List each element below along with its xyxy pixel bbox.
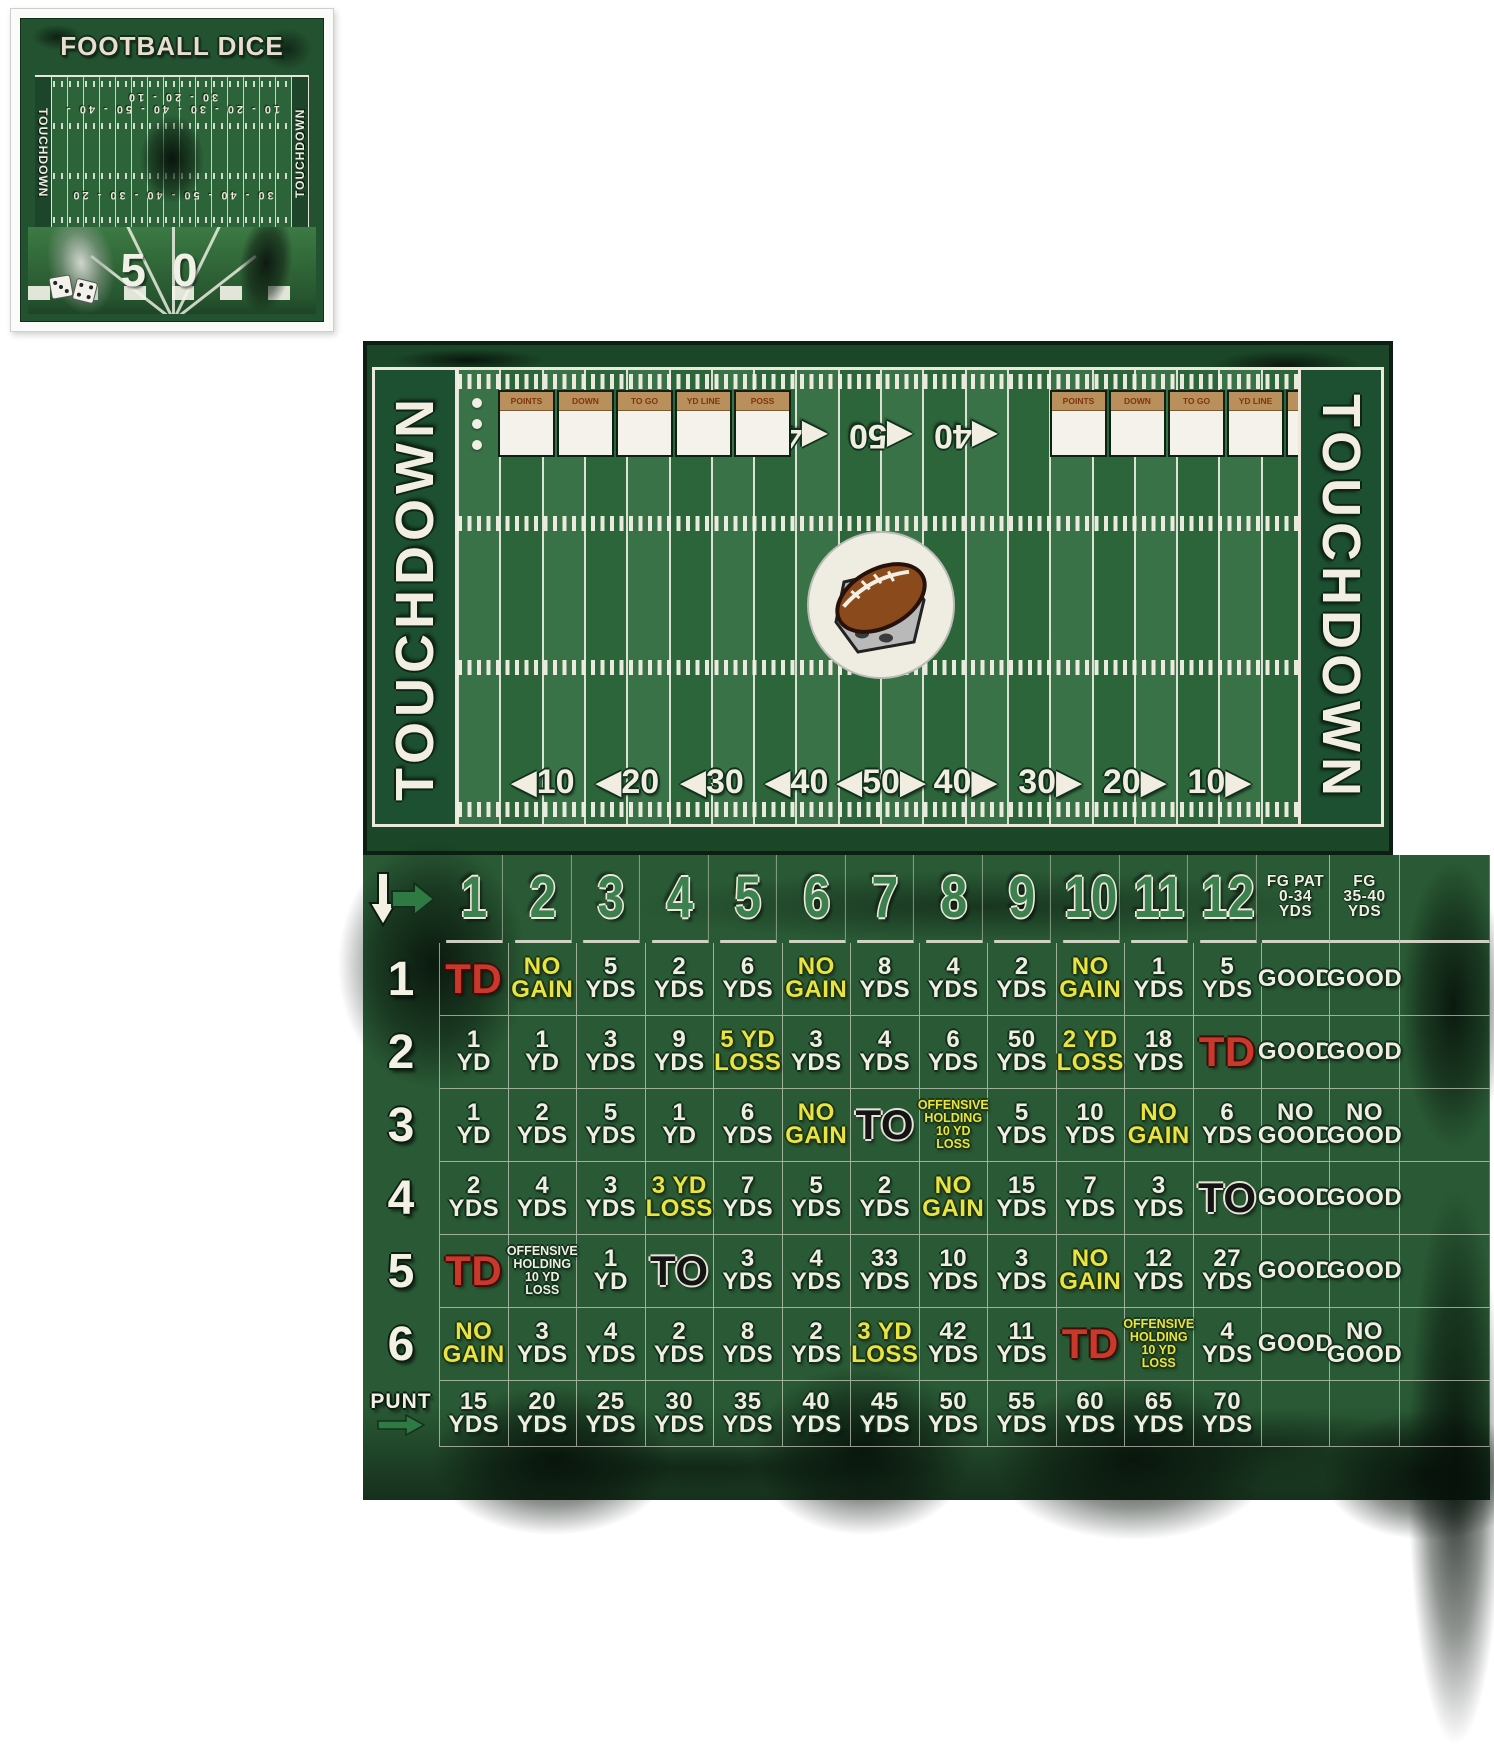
scoreboard-box: TO GO [616, 390, 673, 457]
punt-label: PUNT [370, 1392, 431, 1412]
scoreboard-box-header: YD LINE [677, 392, 730, 411]
die-row-label-1: 1 [363, 943, 440, 1016]
right-arrow-icon [392, 883, 434, 915]
cover-endzone-left-label: TOUCHDOWN [36, 108, 50, 197]
result-cell: TD [1194, 1016, 1263, 1089]
scoreboard-box-header: TO GO [618, 392, 671, 411]
result-cell: 3 YDS [577, 1162, 646, 1235]
result-cell: 1 YD [646, 1089, 715, 1162]
row-filler [1400, 1235, 1490, 1308]
scoreboard-box-field [1229, 411, 1282, 455]
game-board: TOUCHDOWN ◀10◀20◀30◀40◀50▶40▶30▶20▶10 [363, 341, 1490, 1500]
dice-column-header-9: 9 [994, 855, 1050, 943]
result-cell [1262, 1381, 1330, 1447]
result-cell: 3 YD LOSS [646, 1162, 715, 1235]
scoreboard-box-header: POINTS [500, 392, 553, 411]
die-row-label-2: 2 [363, 1016, 440, 1089]
result-cell: 5 YDS [783, 1162, 852, 1235]
result-cell: 1 YD [440, 1016, 509, 1089]
result-cell: 4 YDS [509, 1162, 578, 1235]
yard-number: 30▶ [1018, 762, 1082, 802]
result-cell: 6 YDS [714, 1089, 783, 1162]
die-row-label-4: 4 [363, 1162, 440, 1235]
scoreboard-box: POINTS [498, 390, 555, 457]
result-cell: 20 YDS [509, 1381, 578, 1447]
dice-column-header-4: 4 [652, 855, 708, 943]
result-cell: GOOD [1262, 943, 1330, 1016]
result-cell: 3 YDS [577, 1016, 646, 1089]
result-cell: NO GOOD [1330, 1089, 1400, 1162]
hash-marks [458, 374, 1298, 389]
result-cell: 2 YDS [646, 943, 715, 1016]
dice-column-header-6: 6 [789, 855, 845, 943]
box-cover-thumbnail: FOOTBALL DICE TOUCHDOWN TOUCHDOWN 10 - 2… [10, 8, 334, 332]
result-cell: 3 YDS [783, 1016, 852, 1089]
scoreboard-box-field [1052, 411, 1105, 455]
score-dot [472, 398, 482, 408]
scoreboard-box-header: POINTS [1052, 392, 1105, 411]
yard-number: 40▶ [934, 762, 998, 802]
cover-dice-icon [48, 274, 73, 299]
result-cell: GOOD [1262, 1235, 1330, 1308]
yard-number: ◀30 [680, 762, 744, 802]
result-cell: NO GAIN [1057, 1235, 1126, 1308]
result-cell: 70 YDS [1194, 1381, 1263, 1447]
result-cell: 2 YDS [509, 1089, 578, 1162]
yard-line [1007, 370, 1009, 824]
arrow-icons [366, 859, 438, 939]
result-cell: 5 YD LOSS [714, 1016, 783, 1089]
yard-number-inverted: ◀50 [849, 416, 913, 456]
result-cell: 3 YDS [1125, 1162, 1194, 1235]
dice-column-header-3: 3 [583, 855, 639, 943]
result-cell: 8 YDS [851, 943, 920, 1016]
cover-hash-marks [53, 217, 291, 223]
result-cell: 55 YDS [988, 1381, 1057, 1447]
result-cell: OFFENSIVE HOLDING 10 YD LOSS [920, 1089, 989, 1162]
right-endzone: TOUCHDOWN [1298, 370, 1381, 824]
fg-column-header-1: FG PAT 0-34 YDS [1262, 855, 1330, 943]
row-filler [1400, 1089, 1490, 1162]
scoreboard-box: TO GO [1168, 390, 1225, 457]
scoreboard-box-field [1111, 411, 1164, 455]
header-filler [1400, 855, 1490, 943]
result-cell: NO GAIN [509, 943, 578, 1016]
result-cell: 6 YDS [920, 1016, 989, 1089]
result-cell: 12 YDS [1125, 1235, 1194, 1308]
result-cell: 15 YDS [440, 1381, 509, 1447]
scoreboard-box-header: POSS [736, 392, 789, 411]
dice-column-header-2: 2 [515, 855, 571, 943]
right-endzone-label: TOUCHDOWN [1310, 394, 1372, 801]
dice-column-header-11: 11 [1131, 855, 1187, 943]
row-filler [1400, 1308, 1490, 1381]
result-cell: 2 YDS [988, 943, 1057, 1016]
cover-fifty-yard-text: 50 [120, 243, 223, 297]
result-cell: GOOD [1330, 1162, 1400, 1235]
result-cell: NO GOOD [1330, 1308, 1400, 1381]
score-dots-left [472, 398, 482, 450]
result-cell: 3 YD LOSS [851, 1308, 920, 1381]
cover-perspective-field: 50 [28, 227, 316, 314]
yard-number: ◀50▶ [836, 762, 926, 802]
scoreboard-box-field [618, 411, 671, 455]
result-cell: 5 YDS [577, 1089, 646, 1162]
result-cell: TO [646, 1235, 715, 1308]
scoreboard-left: POINTSDOWNTO GOYD LINEPOSS [498, 390, 791, 457]
yard-number: ◀10 [511, 762, 575, 802]
result-cell: TO [851, 1089, 920, 1162]
result-cell: 30 YDS [646, 1381, 715, 1447]
result-cell: 9 YDS [646, 1016, 715, 1089]
result-cell: NO GOOD [1262, 1089, 1330, 1162]
result-cell: 4 YDS [1194, 1308, 1263, 1381]
result-cell: 40 YDS [783, 1381, 852, 1447]
row-filler [1400, 1162, 1490, 1235]
result-cell: 35 YDS [714, 1381, 783, 1447]
result-cell: 7 YDS [714, 1162, 783, 1235]
result-cell: GOOD [1330, 943, 1400, 1016]
result-cell: 4 YDS [851, 1016, 920, 1089]
score-dot [472, 440, 482, 450]
cover-title: FOOTBALL DICE [21, 31, 323, 62]
result-cell: GOOD [1330, 1016, 1400, 1089]
result-cell: 5 YDS [577, 943, 646, 1016]
cover-player-silhouette [140, 115, 204, 203]
result-cell: 8 YDS [714, 1308, 783, 1381]
cover-endzone-right: TOUCHDOWN [292, 77, 309, 229]
cover-hash-marks [53, 81, 291, 87]
result-cell: 3 YDS [988, 1235, 1057, 1308]
hash-marks [458, 802, 1298, 817]
cover-endzone-right-label: TOUCHDOWN [293, 108, 307, 197]
scoreboard-box-header: DOWN [559, 392, 612, 411]
result-cell: NO GAIN [1125, 1089, 1194, 1162]
result-cell: 60 YDS [1057, 1381, 1126, 1447]
result-cell: 11 YDS [988, 1308, 1057, 1381]
result-cell: 1 YDS [1125, 943, 1194, 1016]
dice-column-header-10: 10 [1063, 855, 1119, 943]
result-cell: 27 YDS [1194, 1235, 1263, 1308]
cover-endzone-left: TOUCHDOWN [35, 77, 52, 229]
result-cell: 10 YDS [1057, 1089, 1126, 1162]
result-cell: TO [1194, 1162, 1263, 1235]
result-cell: 2 YDS [646, 1308, 715, 1381]
result-cell: 25 YDS [577, 1381, 646, 1447]
scoreboard-box: YD LINE [1227, 390, 1284, 457]
scoreboard-box: YD LINE [675, 390, 732, 457]
yard-number: 10▶ [1187, 762, 1251, 802]
result-cell: NO GAIN [783, 943, 852, 1016]
result-cell: 5 YDS [988, 1089, 1057, 1162]
result-cell: OFFENSIVE HOLDING 10 YD LOSS [1125, 1308, 1194, 1381]
die-row-label-6: 6 [363, 1308, 440, 1381]
die-row-label-3: 3 [363, 1089, 440, 1162]
result-cell: 42 YDS [920, 1308, 989, 1381]
yard-number-inverted: ◀40 [934, 416, 998, 456]
result-cell: 5 YDS [1194, 943, 1263, 1016]
yard-number: 20▶ [1103, 762, 1167, 802]
die-row-label-5: 5 [363, 1235, 440, 1308]
result-cell: NO GAIN [920, 1162, 989, 1235]
result-cell: 4 YDS [577, 1308, 646, 1381]
result-cell: 18 YDS [1125, 1016, 1194, 1089]
row-filler [1400, 1016, 1490, 1089]
result-cell: 7 YDS [1057, 1162, 1126, 1235]
result-cell: 2 YDS [851, 1162, 920, 1235]
left-endzone-label: TOUCHDOWN [384, 394, 446, 801]
cover-board: FOOTBALL DICE TOUCHDOWN TOUCHDOWN 10 - 2… [20, 18, 324, 322]
result-cell: GOOD [1330, 1235, 1400, 1308]
result-cell: 2 YD LOSS [1057, 1016, 1126, 1089]
result-cell: OFFENSIVE HOLDING 10 YD LOSS [509, 1235, 578, 1308]
scoreboard-box-header: DOWN [1111, 392, 1164, 411]
result-cell: 65 YDS [1125, 1381, 1194, 1447]
result-cell: NO GAIN [440, 1308, 509, 1381]
scoreboard-box: DOWN [557, 390, 614, 457]
result-cell: TD [440, 943, 509, 1016]
row-filler [1400, 1381, 1490, 1447]
result-cell: 33 YDS [851, 1235, 920, 1308]
result-cell: 1 YD [509, 1016, 578, 1089]
scoreboard-box: DOWN [1109, 390, 1166, 457]
dice-column-header-5: 5 [720, 855, 776, 943]
scoreboard-box-field [559, 411, 612, 455]
yard-number: ◀40 [764, 762, 828, 802]
row-filler [1400, 943, 1490, 1016]
scoreboard-box-field [736, 411, 789, 455]
result-cell: 15 YDS [988, 1162, 1057, 1235]
result-cell: 10 YDS [920, 1235, 989, 1308]
yard-number: ◀20 [595, 762, 659, 802]
product-image-page: { "thumbnail": { "title": "FOOTBALL DICE… [0, 0, 1494, 1500]
result-cell: NO GAIN [783, 1089, 852, 1162]
result-cell: 4 YDS [920, 943, 989, 1016]
result-cell: 6 YDS [1194, 1089, 1263, 1162]
score-dot [472, 419, 482, 429]
field-inner: TOUCHDOWN ◀10◀20◀30◀40◀50▶40▶30▶20▶10 [372, 367, 1384, 827]
scoreboard-box-header: YD LINE [1229, 392, 1282, 411]
dice-column-header-12: 12 [1200, 855, 1256, 943]
scoreboard-box: POSS [734, 390, 791, 457]
result-cell: NO GAIN [1057, 943, 1126, 1016]
scoreboard-box: POINTS [1050, 390, 1107, 457]
scoreboard-box-field [677, 411, 730, 455]
result-cell: 4 YDS [783, 1235, 852, 1308]
yard-line [457, 370, 459, 824]
result-cell: 2 YDS [783, 1308, 852, 1381]
football-field: TOUCHDOWN ◀10◀20◀30◀40◀50▶40▶30▶20▶10 [363, 341, 1393, 855]
punt-arrow-icon [376, 1414, 426, 1436]
cover-yard-numbers-top: 10 - 20 - 30 - 40 - 50 - 40 - 30 - 20 - … [55, 91, 289, 115]
left-endzone: TOUCHDOWN [375, 370, 458, 824]
dice-column-header-1: 1 [446, 855, 502, 943]
result-cell: 6 YDS [714, 943, 783, 1016]
dice-column-header-8: 8 [926, 855, 982, 943]
result-cell [1330, 1381, 1400, 1447]
result-cell: 45 YDS [851, 1381, 920, 1447]
cover-defender-silhouette [233, 227, 298, 314]
scoreboard-box-header: TO GO [1170, 392, 1223, 411]
result-cell: 1 YD [577, 1235, 646, 1308]
result-cell: 3 YDS [509, 1308, 578, 1381]
fg-column-header-2: FG 35-40 YDS [1330, 855, 1400, 943]
result-cell: TD [440, 1235, 509, 1308]
scoreboard-box-field [500, 411, 553, 455]
results-section: 123456789101112FG PAT 0-34 YDSFG 35-40 Y… [363, 855, 1490, 1500]
football-tee-icon [806, 530, 956, 680]
result-cell: 2 YDS [440, 1162, 509, 1235]
dice-column-header-7: 7 [857, 855, 913, 943]
results-table: 123456789101112FG PAT 0-34 YDSFG 35-40 Y… [363, 855, 1490, 1447]
result-cell: TD [1057, 1308, 1126, 1381]
hash-marks [458, 516, 1298, 531]
result-cell: GOOD [1262, 1162, 1330, 1235]
punt-row-label: PUNT [363, 1381, 440, 1447]
result-cell: 50 YDS [920, 1381, 989, 1447]
result-cell: GOOD [1262, 1016, 1330, 1089]
playfield: ◀10◀20◀30◀40◀50▶40▶30▶20▶10▶◀40◀50◀40POI… [458, 370, 1298, 824]
result-cell: GOOD [1262, 1308, 1330, 1381]
result-cell: 50 YDS [988, 1016, 1057, 1089]
dice-arrows [363, 855, 440, 943]
result-cell: 1 YD [440, 1089, 509, 1162]
scoreboard-box-field [1170, 411, 1223, 455]
result-cell: 3 YDS [714, 1235, 783, 1308]
